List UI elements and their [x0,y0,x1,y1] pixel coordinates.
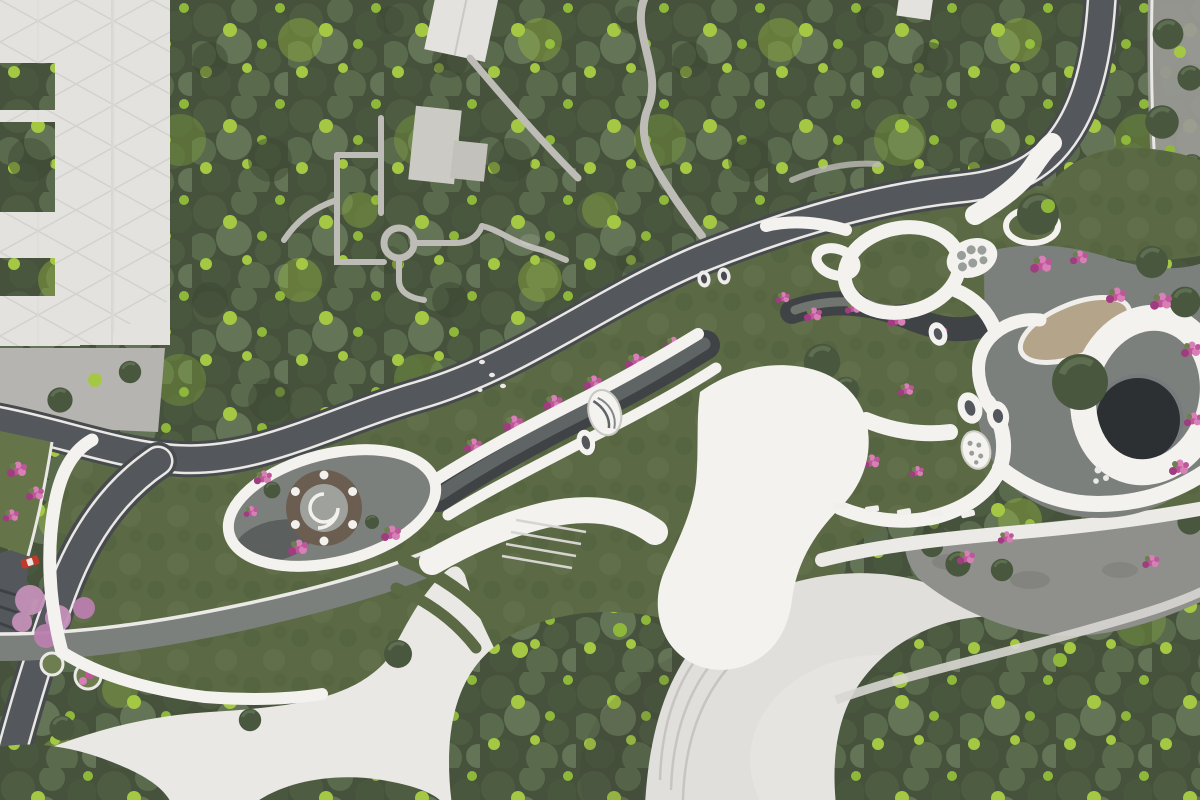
aerial-render [0,0,1200,800]
spiral-plaza [286,470,362,546]
site-plan-svg [0,0,1200,800]
